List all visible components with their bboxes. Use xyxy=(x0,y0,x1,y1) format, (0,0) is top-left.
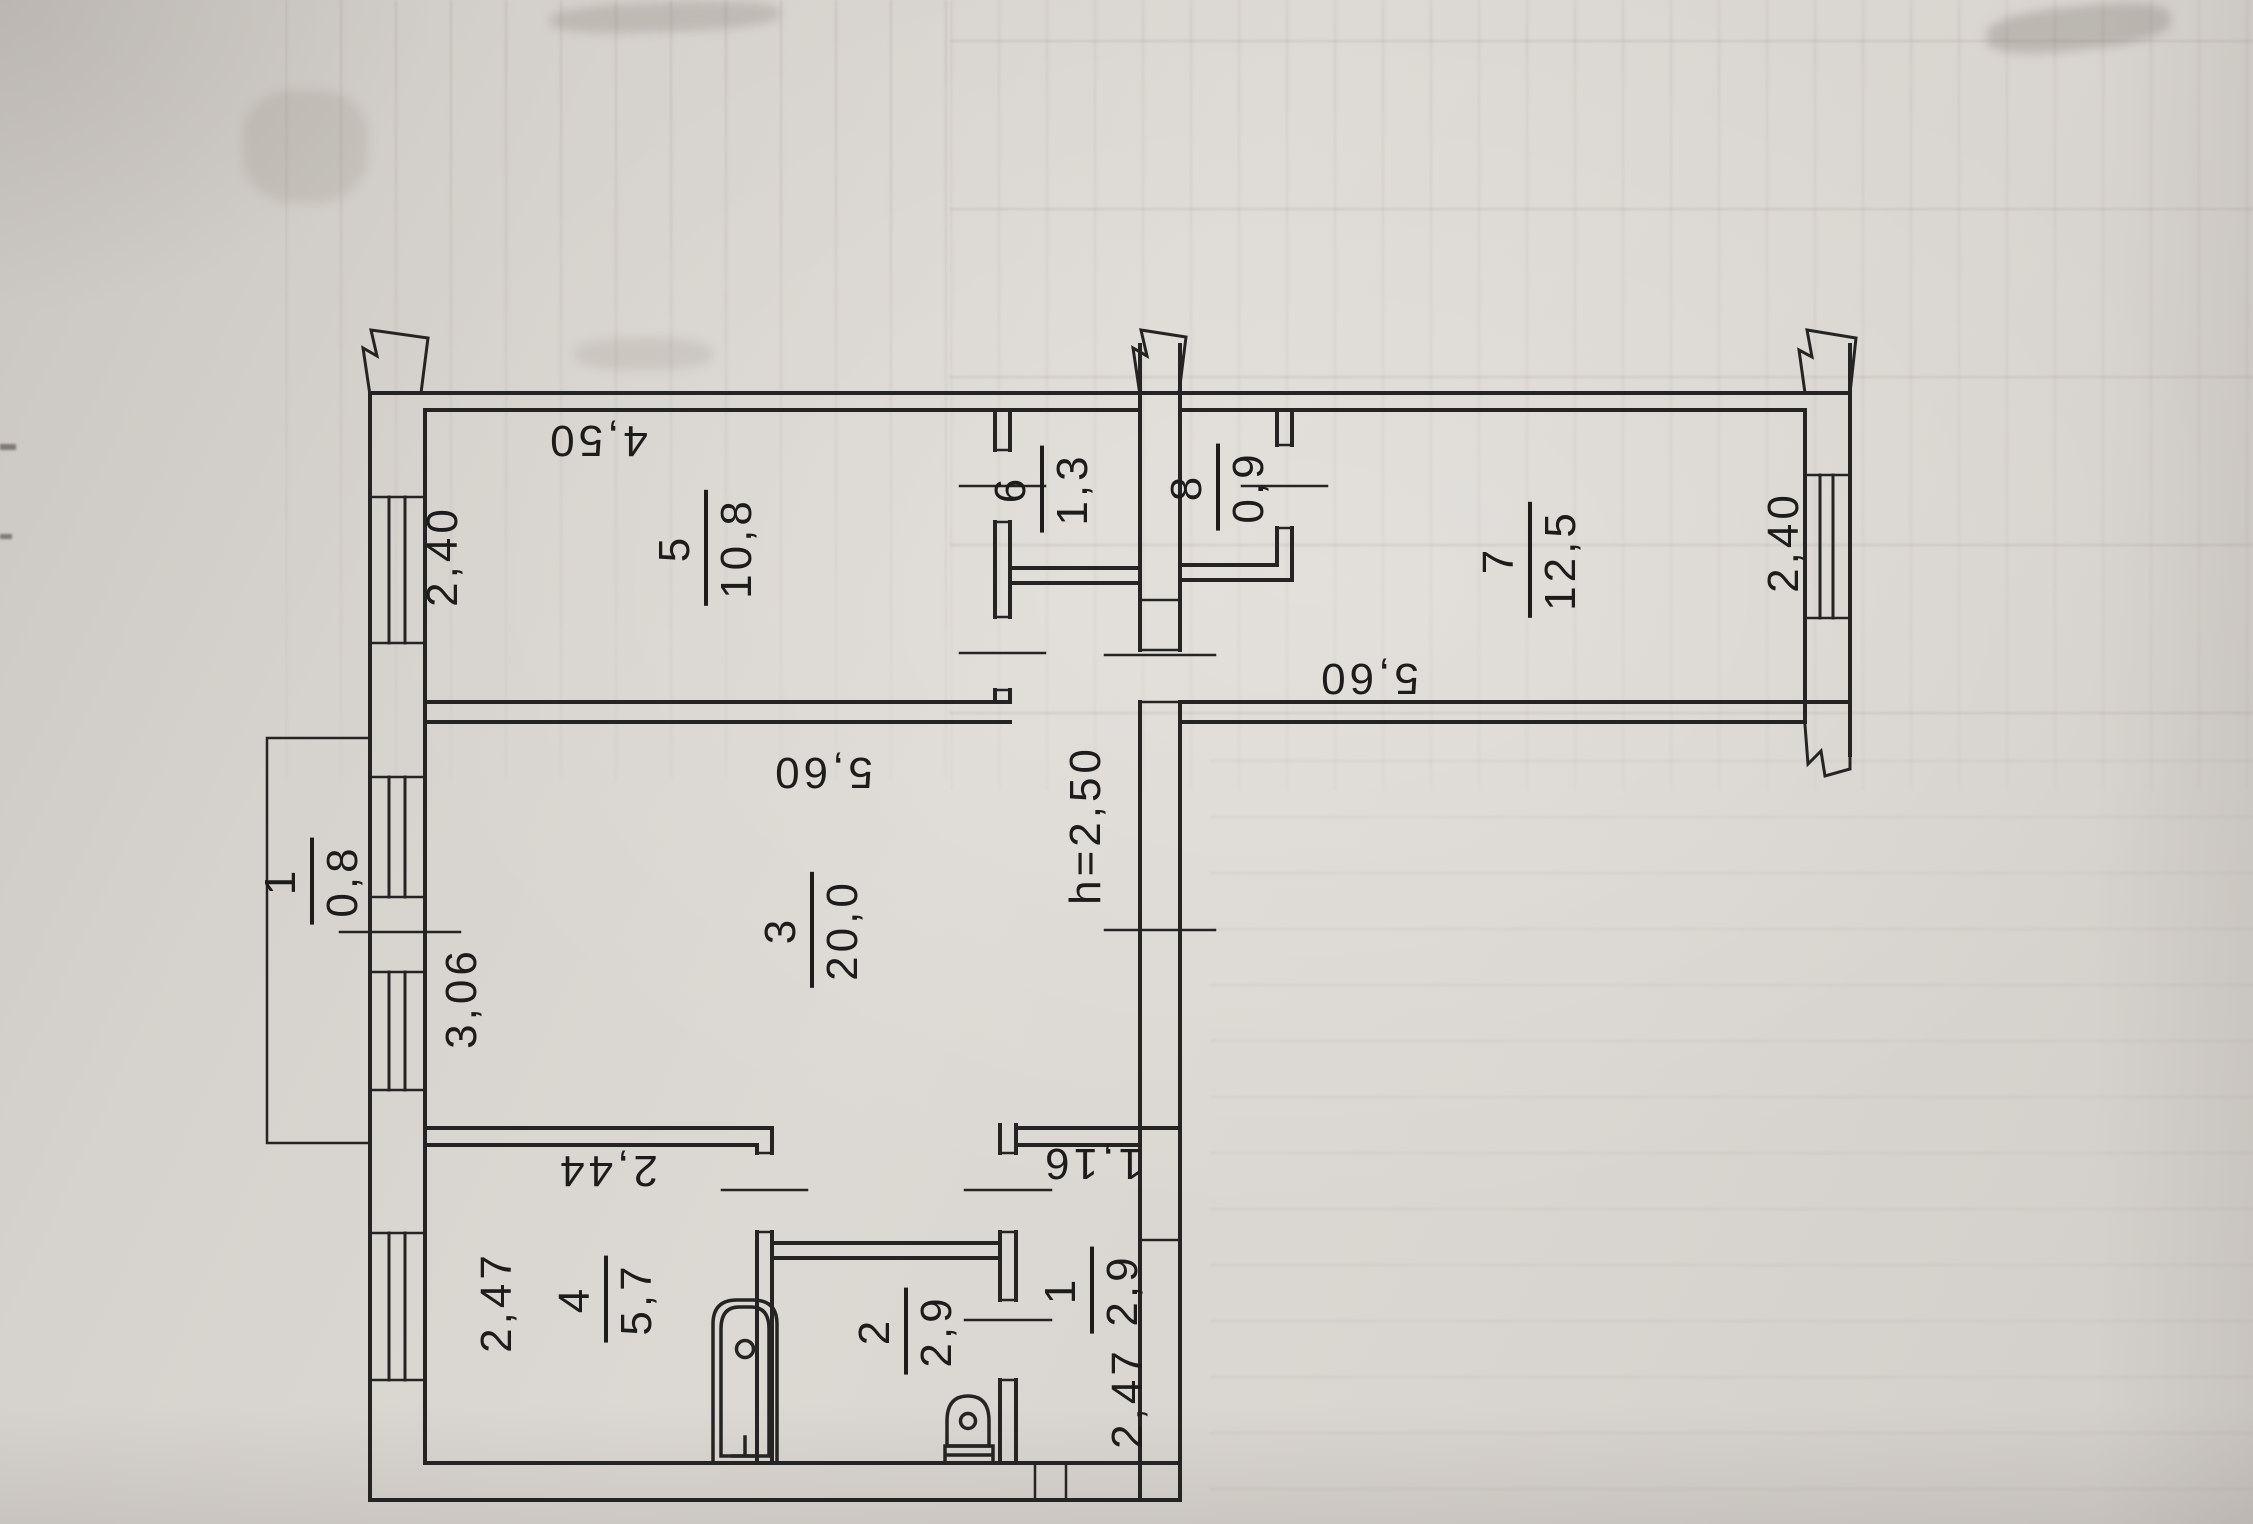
room-label-2: 2 2,9 xyxy=(853,1294,959,1367)
toilet-drain xyxy=(961,1414,976,1429)
fraction-bar xyxy=(1216,443,1220,530)
room-label-4: 4 5,7 xyxy=(553,1262,659,1335)
room-label-1: 1 2,9 xyxy=(1039,1253,1145,1326)
fraction-bar xyxy=(1090,1246,1094,1333)
room-area: 1,3 xyxy=(1051,452,1095,525)
fraction-bar xyxy=(810,872,814,988)
balcony-outline xyxy=(267,738,370,1143)
bathtub-drain xyxy=(737,1341,754,1358)
room-number: 5 xyxy=(653,534,697,562)
room-number: 4 xyxy=(553,1285,597,1313)
toilet xyxy=(945,1396,993,1463)
room-number: 7 xyxy=(1477,546,1521,574)
dim-room5-bottom: 5,60 xyxy=(771,750,873,794)
room-area: 5,7 xyxy=(615,1262,659,1335)
room-area: 0,8 xyxy=(321,844,365,917)
dim-balcony-wall: 3,06 xyxy=(440,947,484,1049)
wall-break-marks xyxy=(363,330,1856,776)
dim-room4-depth: 2,47 xyxy=(475,1251,519,1353)
room-number: 2 xyxy=(853,1317,897,1345)
fraction-bar xyxy=(604,1255,608,1342)
fraction-bar xyxy=(704,490,708,606)
fraction-bar xyxy=(310,837,314,924)
ceiling-height-note: h=2,50 xyxy=(1064,745,1108,905)
room-number: 8 xyxy=(1165,473,1209,501)
dim-room1-width: 1,16 xyxy=(1041,1141,1143,1185)
balcony-label: 1 0,8 xyxy=(259,844,365,917)
room-area: 0,9 xyxy=(1227,450,1271,523)
room-area: 2,9 xyxy=(915,1294,959,1367)
floorplan-photo: 4,50 2,40 2,40 5,60 5,60 3,06 2,44 2,47 … xyxy=(0,0,2253,1524)
room-label-5: 5 10,8 xyxy=(653,497,759,599)
room-area: 2,9 xyxy=(1101,1253,1145,1326)
fraction-bar xyxy=(1040,445,1044,532)
dim-top-width: 4,50 xyxy=(546,418,648,462)
dim-room1-depth: 2,47 xyxy=(1106,1347,1150,1449)
dim-room4-width: 2,44 xyxy=(556,1148,658,1192)
toilet-tank xyxy=(945,1446,993,1463)
room-label-6: 6 1,3 xyxy=(989,452,1095,525)
bathtub xyxy=(713,1300,777,1463)
room-area: 20,0 xyxy=(821,879,865,981)
bathtub-faucet xyxy=(733,1437,757,1456)
fraction-bar xyxy=(904,1287,908,1374)
room-number: 1 xyxy=(1039,1276,1083,1304)
room-label-8: 8 0,9 xyxy=(1165,450,1271,523)
room-area: 10,8 xyxy=(715,497,759,599)
room-label-3: 3 20,0 xyxy=(759,879,865,981)
dim-room7-bottom: 5,60 xyxy=(1317,656,1419,700)
room-number: 6 xyxy=(989,475,1033,503)
windows xyxy=(389,475,1833,1380)
room-area: 12,5 xyxy=(1539,509,1583,611)
dim-right-window: 2,40 xyxy=(1762,491,1806,593)
dim-left-window: 2,40 xyxy=(421,505,465,607)
room-number: 1 xyxy=(259,867,303,895)
room-label-7: 7 12,5 xyxy=(1477,509,1583,611)
fraction-bar xyxy=(1528,502,1532,618)
wall-caps-and-joints xyxy=(370,445,1850,1500)
room-number: 3 xyxy=(759,916,803,944)
